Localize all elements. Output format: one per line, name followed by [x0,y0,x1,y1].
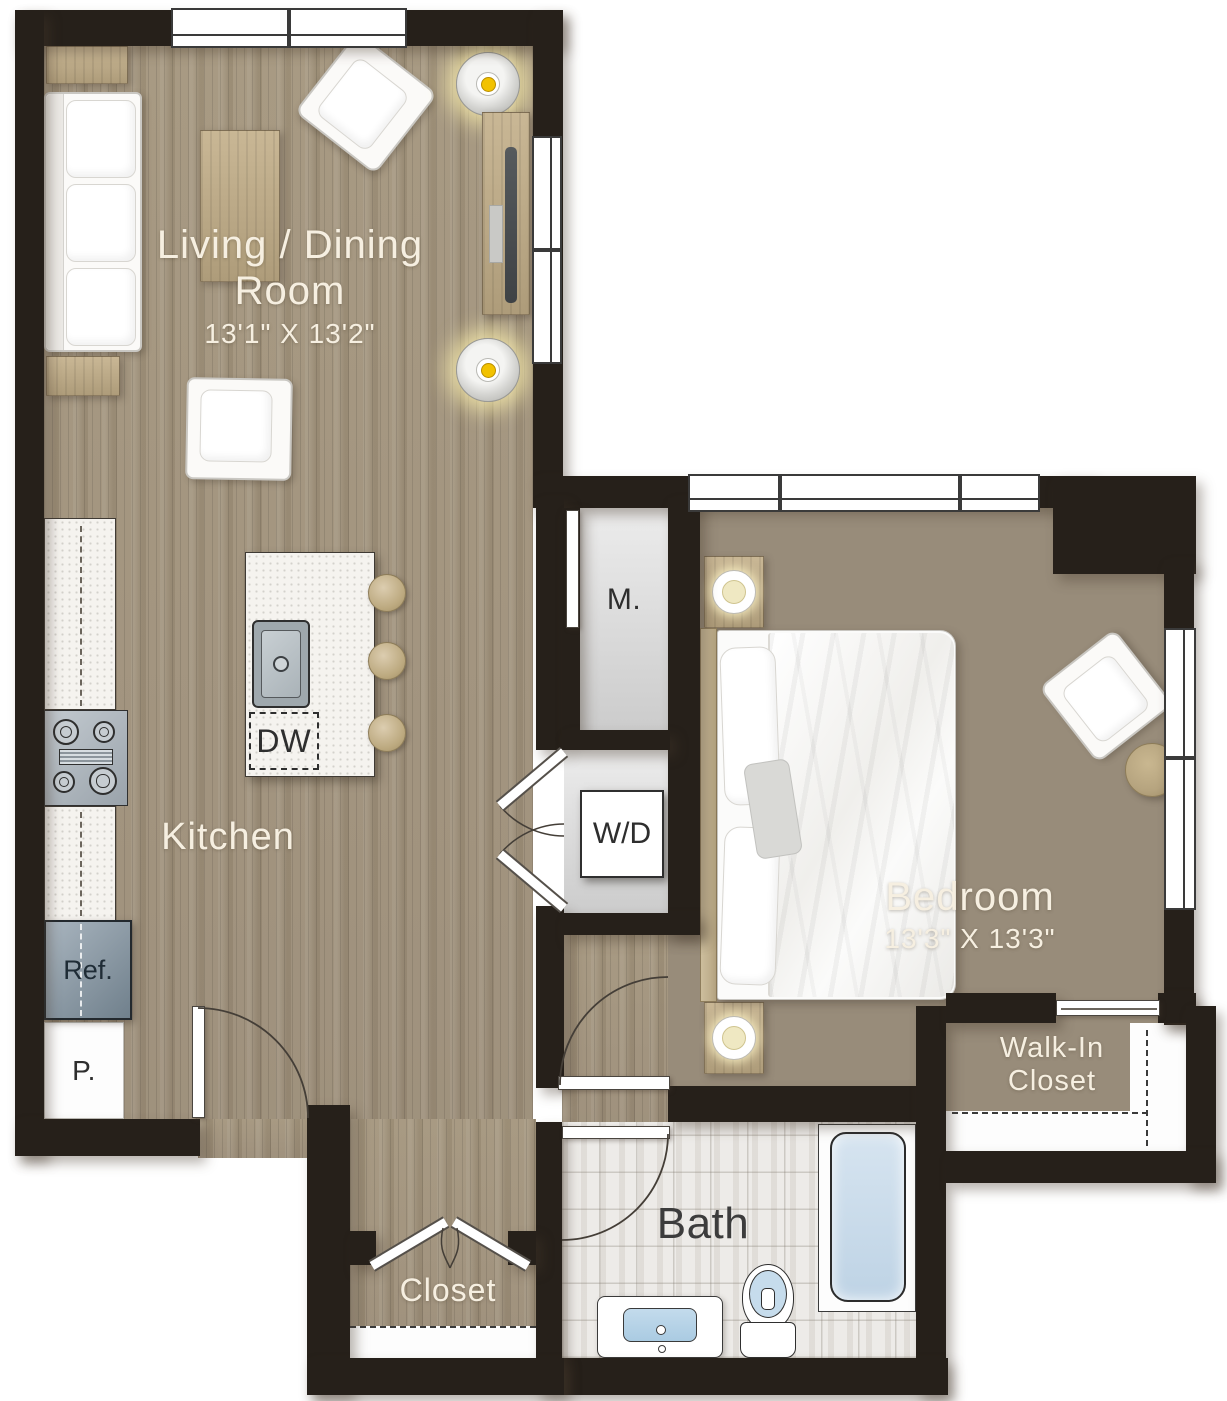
mech-closet-label: M. [594,585,654,615]
toilet-seat-opening [761,1288,775,1310]
ceiling-light [456,52,520,116]
counter-centerline [80,812,82,916]
wall-segment [946,993,1056,1023]
living-room-side-window [532,136,562,364]
pantry-label-wrap: P. [44,1022,124,1119]
bathtub [830,1132,906,1302]
bath-label: Bath [628,1202,778,1246]
kitchen-label: Kitchen [148,816,308,860]
tv-mount [489,205,503,263]
mech-closet-name: M. [594,585,654,615]
sofa-cushion [66,100,136,178]
wall-segment [307,1105,350,1395]
wall-segment [536,1122,562,1395]
stove [44,710,128,806]
ottoman [185,377,293,481]
sofa [44,92,142,352]
wall-segment [562,730,670,750]
walkin-name-2: Closet [972,1065,1132,1098]
stove-vent [59,749,113,765]
living-room-name-1: Living / Dining [140,222,440,268]
living-room-dims: 13'1" X 13'2" [140,318,440,350]
sofa-backrest [46,94,64,350]
walkin-name-1: Walk-In [972,1032,1132,1065]
refrigerator-label: Ref. [63,955,113,986]
entry-doorway-floor [198,1119,307,1158]
toilet [740,1264,796,1360]
vanity-faucet-dot [656,1325,666,1335]
wall-segment [562,913,700,935]
stove-burner [89,767,117,795]
wall-bifold-jamb [350,1231,376,1265]
wall-segment [536,906,564,1088]
wall-segment [668,1086,918,1122]
island-sink [252,620,310,708]
stove-burner [53,771,75,793]
tv-console [482,112,530,315]
bath-vanity [597,1296,723,1358]
mech-closet-floor [580,508,668,730]
entry-door [192,1006,205,1118]
vanity-faucet-dot [658,1345,666,1353]
ottoman-cushion [199,389,272,462]
wall-segment [15,1119,200,1156]
stove-burner [53,719,79,745]
bar-stool [368,642,406,680]
stove-burner [93,721,115,743]
washer-dryer-label: W/D [593,817,651,851]
side-table [46,356,120,396]
console-shelf [46,46,128,84]
living-room-label: Living / Dining Room 13'1" X 13'2" [140,222,440,350]
armchair-cushion [314,55,410,152]
wall-segment [946,1151,1216,1183]
closet-label: Closet [378,1272,518,1309]
bar-stool [368,574,406,612]
closet-shelf-floor [350,1326,536,1358]
bedroom-window [688,474,1040,512]
sofa-cushion [66,184,136,262]
walkin-closet-sliding-door [1056,1000,1160,1016]
nightstand-lamp [712,1016,756,1060]
walkin-closet-label: Walk-In Closet [972,1032,1132,1099]
tv-screen [505,147,517,303]
wall-segment [668,498,700,935]
bedroom-name: Bedroom [845,874,1095,920]
toilet-tank [740,1322,796,1358]
bath-name: Bath [628,1202,778,1246]
bath-door [562,1126,670,1139]
bedroom-hall-floor [562,933,668,1122]
pantry-label: P. [72,1057,96,1085]
dishwasher-label: DW [256,723,311,760]
counter-centerline [80,526,82,706]
bedroom-dims: 13'3" X 13'3" [845,923,1095,955]
washer-dryer-unit: W/D [580,790,664,878]
living-room-name-2: Room [140,268,440,314]
nightstand-lamp [712,570,756,614]
ceiling-light [456,338,520,402]
refrigerator: Ref. [44,920,132,1020]
closet-name: Closet [378,1272,518,1309]
bedroom-door [558,1076,670,1090]
walkin-shelf-dash-h [952,1112,1148,1114]
bedroom-side-window [1164,628,1196,910]
floor-plan: Ref. P. DW [0,0,1227,1401]
bar-stool [368,714,406,752]
dishwasher-box: DW [249,712,319,770]
living-room-window [171,8,407,48]
wall-segment [536,498,564,750]
wall-segment [560,1358,948,1395]
wall-segment [307,1358,564,1395]
bedroom-armchair-cushion [1060,652,1152,745]
kitchen-name: Kitchen [148,816,308,860]
bed-headboard [700,628,717,1002]
mech-closet-door [566,510,579,628]
wall-segment [916,1006,946,1395]
bedroom-label: Bedroom 13'3" X 13'3" [845,874,1095,955]
sofa-cushion [66,268,136,346]
wall-segment [15,10,44,1156]
walkin-shelf-dash-v [1146,1030,1148,1146]
wall-bifold-jamb [508,1231,536,1265]
sink-drain [273,656,289,672]
